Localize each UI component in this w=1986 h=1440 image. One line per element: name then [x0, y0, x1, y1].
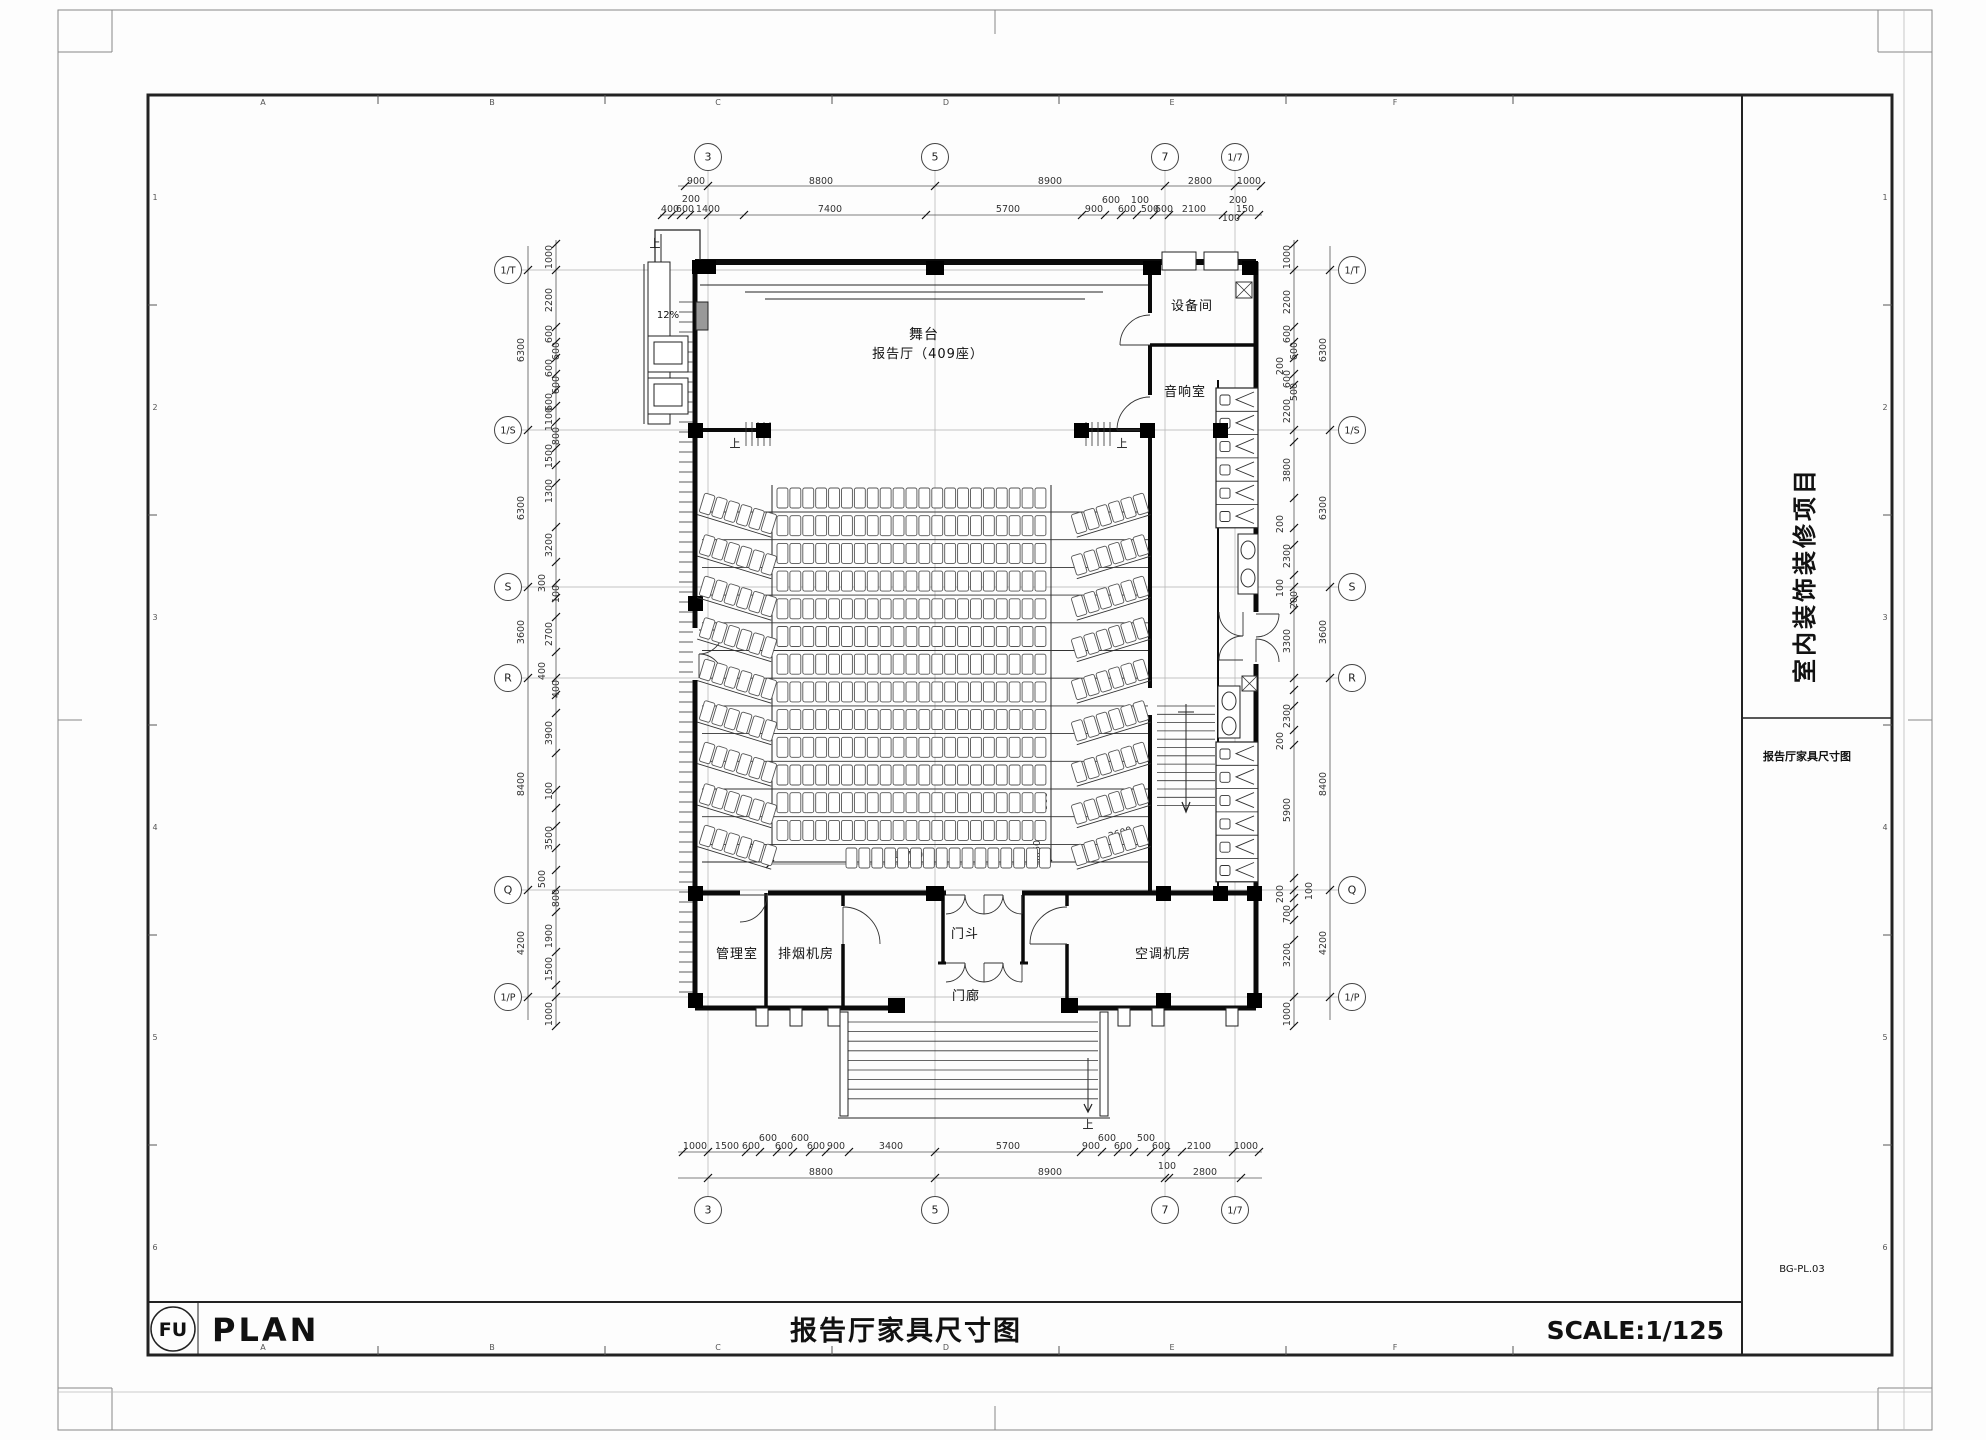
grid-bubble-label: R: [504, 672, 512, 685]
dimension: 1000: [544, 1002, 555, 1026]
dimension: 3900: [544, 721, 555, 745]
zone-number: 2: [1882, 403, 1887, 412]
dimension: 3300: [1282, 629, 1293, 653]
dimension: 6300: [1318, 338, 1329, 362]
dimension: 3200: [1282, 943, 1293, 967]
seat-bank-row: [1070, 783, 1151, 828]
zone-number: 4: [152, 823, 157, 832]
grid-bubble-label: 1/P: [1345, 993, 1360, 1004]
dimension: 5900: [1282, 798, 1293, 822]
dimension: 600: [1152, 1141, 1170, 1152]
zone-letter: C: [715, 98, 721, 107]
zone-number: 6: [152, 1243, 157, 1252]
sheet-frame-svg: AABBCCDDEEFF112233445566 FU PLAN 报告厅家具尺寸…: [0, 0, 1986, 1440]
dimension: 100: [1275, 579, 1286, 597]
seat-bank-row: [697, 493, 778, 538]
annotation: 上: [730, 437, 741, 450]
dimension: 600: [1114, 1141, 1132, 1152]
dimension: 8900: [1038, 1167, 1062, 1178]
dimension: 2100: [1187, 1141, 1211, 1152]
dimension: 8800: [809, 1167, 833, 1178]
dimension: 400: [551, 680, 562, 698]
grid-bubble-label: 3: [705, 1204, 712, 1217]
grid-bubble-label: 3: [705, 151, 712, 164]
dimension: 200: [1289, 591, 1300, 609]
grid-bubble-label: Q: [1348, 884, 1357, 897]
grid-bubble-label: 1/T: [1344, 266, 1359, 277]
dimension: 1900: [544, 924, 555, 948]
grid-bubble-label: 1/T: [500, 266, 515, 277]
seat-bank-row: [1070, 700, 1151, 745]
grid-bubble-label: 1/P: [501, 993, 516, 1004]
grid-bubble-label: 7: [1162, 1204, 1169, 1217]
dimension: 6300: [516, 338, 527, 362]
dimension: 2300: [1282, 544, 1293, 568]
dimension: 1500: [544, 444, 555, 468]
dimension: 3500: [544, 826, 555, 850]
project-title: 室内装饰装修项目: [1791, 467, 1819, 683]
room-label: 门斗: [951, 927, 979, 942]
dimension: 6300: [516, 496, 527, 520]
annotation: 上: [650, 237, 661, 250]
seat-bank-row: [1070, 617, 1151, 662]
dimension: 7400: [818, 204, 842, 215]
drawing-title: 报告厅家具尺寸图: [1763, 749, 1851, 763]
dimension: 600: [676, 204, 694, 215]
room-label: 排烟机房: [778, 946, 834, 962]
dimension: 600: [807, 1141, 825, 1152]
dimension: 1300: [544, 479, 555, 503]
seat-bank-row: [1070, 742, 1151, 787]
dimension: 150: [1236, 204, 1254, 215]
dimension: 100: [1304, 882, 1315, 900]
zone-number: 1: [152, 193, 157, 202]
dimension: 900: [687, 176, 705, 187]
dimension: 3600: [1318, 620, 1329, 644]
grid-bubble-label: Q: [504, 884, 513, 897]
room-label: 音响室: [1164, 384, 1206, 400]
dimension: 2200: [1282, 290, 1293, 314]
grid-bubble-label: R: [1348, 672, 1356, 685]
zone-number: 3: [1882, 613, 1887, 622]
dimension: 2200: [1282, 399, 1293, 423]
dimension: 1000: [1282, 245, 1293, 269]
grid-bubble-label: 1/S: [500, 426, 515, 437]
seat-bank-row: [697, 700, 778, 745]
plan-type-label: PLAN: [212, 1311, 319, 1349]
dimension: 600: [1282, 325, 1293, 343]
grid-bubble-label: 1/7: [1227, 1206, 1242, 1217]
dimension: 800: [551, 427, 562, 445]
room-label: 空调机房: [1135, 946, 1191, 962]
zone-number: 5: [1882, 1033, 1887, 1042]
dimension: 100: [1158, 1161, 1176, 1172]
dimension: 600: [742, 1141, 760, 1152]
dimension: 300: [537, 574, 548, 592]
room-label: 舞台: [909, 327, 939, 343]
zone-letter: B: [489, 1343, 495, 1352]
room-label: 设备间: [1171, 298, 1213, 314]
room-label: 门廊: [952, 988, 980, 1004]
dimension: 900: [1085, 204, 1103, 215]
seat-bank-row: [697, 576, 778, 621]
seat-bank-row: [697, 742, 778, 787]
grid-bubble-label: 5: [932, 151, 939, 164]
zone-letter: D: [943, 98, 949, 107]
dimension: 600: [1289, 342, 1300, 360]
dimension: 400: [537, 662, 548, 680]
seat-bank-row: [1070, 659, 1151, 704]
grid-bubble-label: 1/7: [1227, 153, 1242, 164]
drawing-number: BG-PL.03: [1779, 1264, 1825, 1275]
dimension: 8400: [516, 772, 527, 796]
seat-bank-row: [697, 783, 778, 828]
zone-letter: B: [489, 98, 495, 107]
seat-bank-row: [1070, 534, 1151, 579]
dimension: 1000: [683, 1141, 707, 1152]
grid-bubble-label: S: [1349, 581, 1356, 594]
dimension: 600: [544, 359, 555, 377]
seating: [697, 488, 1151, 869]
zone-letter: F: [1393, 1343, 1398, 1352]
room-label: 报告厅（409座）: [872, 347, 984, 362]
dimension: 1400: [696, 204, 720, 215]
floor-plan: 9008800890028001000200400600140074005700…: [495, 144, 1366, 1224]
zone-number: 3: [152, 613, 157, 622]
dimension: 5700: [996, 204, 1020, 215]
zone-letter: A: [260, 98, 266, 107]
annotation: 12%: [657, 310, 679, 321]
dimension: 4200: [516, 931, 527, 955]
grid-bubble-label: S: [505, 581, 512, 594]
dimension: 200: [1275, 515, 1286, 533]
annotation: 上: [1117, 437, 1128, 450]
dimension: 1000: [1282, 1002, 1293, 1026]
doors: [699, 315, 1279, 982]
room-label: 管理室: [716, 946, 758, 962]
zone-letter: F: [1393, 98, 1398, 107]
dimension: 6300: [1318, 496, 1329, 520]
dimension: 600: [544, 325, 555, 343]
dimension: 1000: [1234, 1141, 1258, 1152]
scale-label: SCALE:1/125: [1547, 1316, 1724, 1345]
grid-bubble-label: 5: [932, 1204, 939, 1217]
dimension: 1500: [544, 957, 555, 981]
dimension: 3600: [516, 620, 527, 644]
dimension: 2800: [1188, 176, 1212, 187]
seat-bank-row: [697, 617, 778, 662]
seat-bank-row: [697, 659, 778, 704]
annotation: 上: [1083, 1118, 1094, 1131]
dimension: 200: [1275, 885, 1286, 903]
dimension: 500: [537, 870, 548, 888]
sheet-title: 报告厅家具尺寸图: [790, 1315, 1022, 1347]
dimension: 600: [551, 376, 562, 394]
dimension: 1000: [544, 245, 555, 269]
grid-bubble-label: 7: [1162, 151, 1169, 164]
zone-number: 5: [152, 1033, 157, 1042]
drawing-sheet: AABBCCDDEEFF112233445566 FU PLAN 报告厅家具尺寸…: [0, 0, 1986, 1440]
seat-bank-row: [697, 534, 778, 579]
dimension: 800: [551, 889, 562, 907]
dimension: 3800: [1282, 458, 1293, 482]
dimension: 900: [827, 1141, 845, 1152]
dimension: 2100: [1182, 204, 1206, 215]
dimension: 3400: [879, 1141, 903, 1152]
zone-number: 4: [1882, 823, 1887, 832]
dimension: 100: [551, 585, 562, 603]
seat-bank-row: [1070, 493, 1151, 538]
dimension: 8800: [809, 176, 833, 187]
dimension: 600: [1155, 204, 1173, 215]
dimension: 500: [1289, 383, 1300, 401]
zone-letter: E: [1169, 98, 1174, 107]
dimension: 2800: [1193, 1167, 1217, 1178]
dimension: 3200: [544, 533, 555, 557]
dimension: 2700: [544, 622, 555, 646]
seat-bank-row: [697, 825, 778, 870]
dimension: 2200: [544, 288, 555, 312]
logo-text: FU: [159, 1319, 187, 1341]
dimension: 8400: [1318, 772, 1329, 796]
outer-border: [58, 10, 1932, 1430]
zone-number: 6: [1882, 1243, 1887, 1252]
dimension: 1000: [1237, 176, 1261, 187]
dimension: 1500: [715, 1141, 739, 1152]
seat-bank-row: [1070, 576, 1151, 621]
dimension: 2300: [1282, 704, 1293, 728]
dimension: 600: [551, 342, 562, 360]
zone-number: 2: [152, 403, 157, 412]
zone-letter: E: [1169, 1343, 1174, 1352]
zone-number: 1: [1882, 193, 1887, 202]
zone-letter: C: [715, 1343, 721, 1352]
grid-bubble-label: 1/S: [1344, 426, 1359, 437]
dimension: 5700: [996, 1141, 1020, 1152]
dimension: 700: [1282, 905, 1293, 923]
dimension: 100: [544, 782, 555, 800]
dimension: 4200: [1318, 931, 1329, 955]
dimension: 200: [1275, 732, 1286, 750]
dimension: 8900: [1038, 176, 1062, 187]
